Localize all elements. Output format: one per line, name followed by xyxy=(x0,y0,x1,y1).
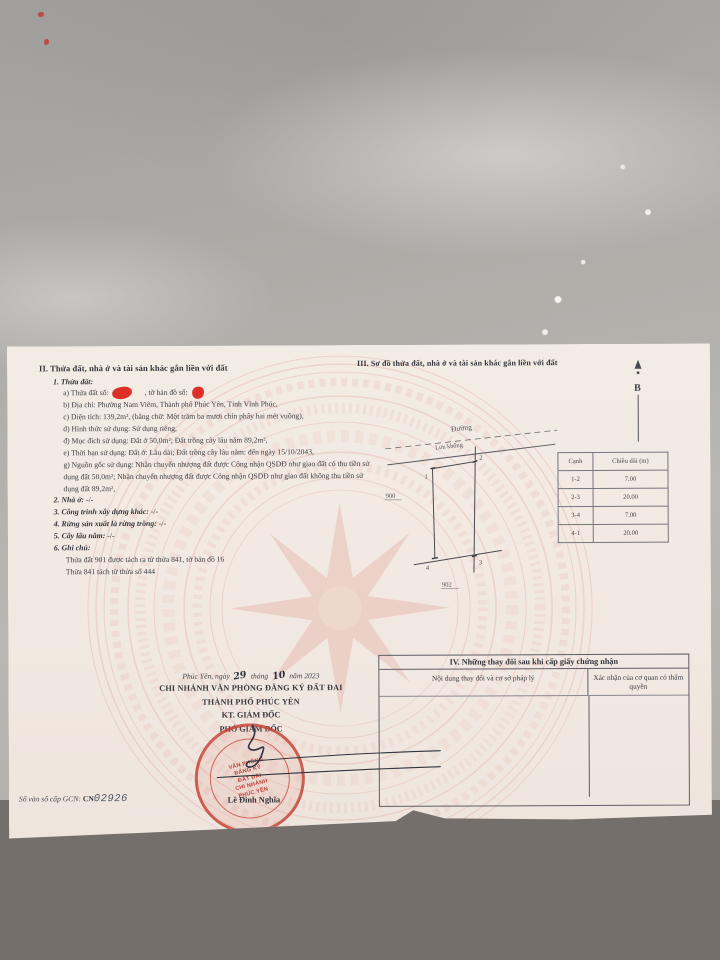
line-origin: g) Nguồn gốc sử dụng: Nhận chuyển nhượng… xyxy=(63,458,369,495)
edge-length-table: Cạnh Chiều dài (m) 1-2 7.00 2-3 20.00 3-… xyxy=(557,452,668,543)
adjacent-parcel-left: 900 xyxy=(386,493,396,500)
north-arrow-icon: B xyxy=(625,358,651,446)
section4-col1-header: Nội dung thay đổi và cơ sở pháp lý xyxy=(379,669,588,696)
serial-number-stamped: 02926 xyxy=(94,793,128,805)
line-use-form: d) Hình thức sử dụng: Sử dụng riêng, xyxy=(63,423,177,435)
section4-heading: IV. Những thay đổi sau khi cấp giấy chứn… xyxy=(379,655,688,670)
note-line-2: Thửa 841 tách từ thửa số 444 xyxy=(66,566,155,578)
handwritten-month: 10 xyxy=(271,669,286,682)
section4-empty-cell xyxy=(590,696,689,797)
org-name-line1: CHI NHÁNH VĂN PHÒNG ĐĂNG KÝ ĐẤT ĐAI xyxy=(113,681,388,696)
land-certificate-page: II. Thửa đất, nhà ở và tài sản khác gắn … xyxy=(7,343,712,838)
line-address: b) Địa chỉ: Phường Nam Viêm, Thành phố P… xyxy=(63,398,278,411)
item-construction: 3. Công trình xây dựng khác: -/- xyxy=(54,506,159,518)
adjacent-parcel-bottom: 902 xyxy=(442,582,452,589)
line-use-purpose: đ) Mục đích sử dụng: Đất ở 50,0m²; Đất t… xyxy=(63,434,267,447)
item-notes: 6. Ghi chú: xyxy=(54,542,91,554)
corner-4-label: 4 xyxy=(426,565,430,572)
org-name-line2: THÀNH PHỐ PHÚC YÊN xyxy=(113,694,388,709)
certificate-serial: Số vào sổ cấp GCN: CN02926 xyxy=(19,793,128,805)
table-row: 1-2 7.00 xyxy=(558,470,668,488)
north-label: B xyxy=(634,383,641,394)
table-row: 2-3 20.00 xyxy=(558,488,668,506)
signer-name: Lê Đình Nghĩa xyxy=(159,795,349,805)
corner-1-label: 1 xyxy=(424,474,427,481)
table-row: 4-1 20.00 xyxy=(558,524,668,542)
signer-role-line1: KT. GIÁM ĐỐC xyxy=(114,708,389,723)
edge-col-header: Cạnh xyxy=(558,452,593,470)
section2-heading: II. Thửa đất, nhà ở và tài sản khác gắn … xyxy=(39,362,379,373)
redaction-mark xyxy=(192,387,203,399)
table-row: 3-4 7.00 xyxy=(558,506,668,524)
line-area: c) Diện tích: 139,2m², (bằng chữ: Một tr… xyxy=(63,410,303,423)
note-line-1: Thửa đất 901 được tách ra từ thửa 841, t… xyxy=(66,554,224,567)
item-forest: 4. Rừng sản xuất là rừng trồng: -/- xyxy=(54,518,167,530)
corner-3-label: 3 xyxy=(479,559,482,566)
road-label: Đường xyxy=(451,422,473,433)
corner-2-label: 2 xyxy=(479,454,482,461)
item-house: 2. Nhà ở: -/- xyxy=(54,494,94,506)
line-use-term: e) Thời hạn sử dụng: Đất ở: Lâu dài; Đất… xyxy=(63,446,314,459)
line-parcel-number: a) Thửa đất số:, tờ bản đồ số: xyxy=(63,387,203,400)
length-col-header: Chiều dài (m) xyxy=(593,452,668,470)
signature-scribble xyxy=(157,723,447,802)
parcel-diagram: Đường Lưu không 1 2 3 4 900 902 xyxy=(379,416,580,597)
section4-col2-header: Xác nhận của cơ quan có thẩm quyền xyxy=(588,669,688,695)
item-perennial: 5. Cây lâu năm: -/- xyxy=(54,530,115,542)
